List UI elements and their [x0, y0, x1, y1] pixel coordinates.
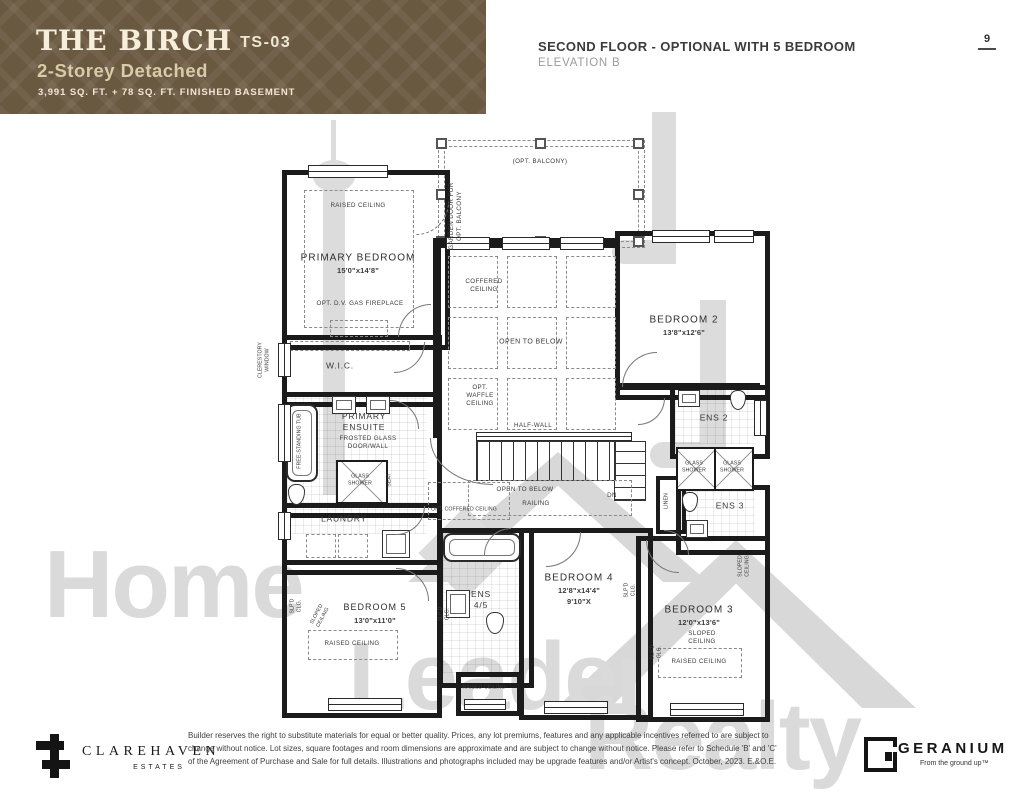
label-line: SLOPED [737, 555, 744, 577]
bedroom3-label: BEDROOM 3 [664, 604, 733, 617]
label-line: SHOWER [348, 480, 372, 487]
washer-outline [306, 534, 336, 558]
wall-segment [433, 238, 441, 438]
railing-label: RAILING [522, 500, 550, 508]
label-line: SLP'D [437, 606, 444, 621]
window [502, 237, 550, 250]
label-line: SLP'D [649, 644, 656, 659]
balcony-label: (OPT. BALCONY) [513, 158, 568, 166]
clarehaven-logo-mark [36, 734, 70, 778]
clerestory-window-label: CLERESTORYWINDOW [257, 342, 271, 378]
plan-title: THE BIRCHTS-03 [36, 24, 291, 57]
disclaimer-line: change without notice. Lot sizes, square… [188, 742, 844, 755]
bedroom2-label: BEDROOM 2 [649, 314, 718, 327]
dryer-outline [338, 534, 368, 558]
geranium-wordmark: GERANIUM [898, 740, 1008, 757]
label-line: SLP'D [623, 582, 630, 597]
half-wall [476, 432, 632, 441]
sloped-ceiling-label: SLOPEDCEILING [737, 555, 751, 577]
floorplan: (OPT. BALCONY) COFFEREDCEILING OPEN TO B… [278, 138, 762, 720]
door-arc [638, 398, 665, 425]
down-label: DN [607, 492, 617, 500]
label-line: RAISED CEILING [463, 685, 506, 692]
sloped-ceiling-label: SLOPEDCEILING [688, 630, 716, 646]
label-line: CEILING [465, 286, 502, 294]
label-line: GLASS [720, 460, 744, 467]
label-line: CLG. [444, 606, 451, 621]
wic-shelf-outline [290, 341, 410, 351]
waffle-ceiling-label: OPT.WAFFLECEILING [466, 384, 494, 408]
label-line: SHOWER [682, 467, 706, 474]
glass-shower-label: GLASSSHOWER [720, 460, 744, 474]
label-line: SLOPED [688, 630, 716, 638]
label-line: CLG. [296, 598, 303, 613]
title-banner: THE BIRCHTS-03 2-Storey Detached 3,991 S… [0, 0, 486, 114]
bedroom4-label: BEDROOM 4 [544, 572, 613, 585]
bedroom5-dims: 13'0"x11'0" [354, 616, 396, 626]
bedroom2-dims: 13'8"x12'6" [663, 328, 705, 338]
window [278, 512, 291, 540]
label-line: WAFFLE [466, 392, 494, 400]
logo-bar [42, 760, 70, 769]
raised-ceiling-label: RAISED CEILING [324, 640, 379, 648]
primary-bedroom-label: PRIMARY BEDROOM [301, 252, 416, 265]
disclaimer-line: Builder reserves the right to substitute… [188, 729, 844, 742]
ensuite45-label: ENS4/5 [471, 589, 491, 611]
half-wall-label: HALF-WALL [514, 422, 552, 430]
plan-area-line: 3,991 SQ. FT. + 78 SQ. FT. FINISHED BASE… [38, 87, 295, 98]
window [278, 343, 291, 377]
disclaimer-line: of the Agreement of Purchase and Sale fo… [188, 755, 844, 768]
label-line: CLERESTORY [257, 342, 264, 378]
room-bedroom-4 [519, 528, 653, 720]
glass-shower-label: GLASSSHOWER [682, 460, 706, 474]
logo-bar [36, 741, 64, 750]
balcony-post [535, 138, 546, 149]
fireplace-label: OPT. D.V. GAS FIREPLACE [316, 300, 403, 308]
window [754, 400, 767, 436]
stairs-symbol [476, 441, 616, 481]
label-line: SLP'D [289, 598, 296, 613]
seat-label: SEAT [387, 473, 394, 487]
window [278, 404, 291, 462]
window [560, 237, 604, 250]
elevation-heading: ELEVATION B [538, 57, 621, 69]
primary-bedroom-dims: 15'0"x14'8" [337, 266, 379, 276]
window [544, 701, 608, 714]
garden-door-label: GARDEN DOOR FOROPT. BALCONY [448, 182, 464, 250]
disclaimer: Builder reserves the right to substitute… [188, 729, 844, 768]
label-line: ENSUITE [342, 422, 386, 433]
label-line: SHOWER [720, 467, 744, 474]
label-line: OPT. BALCONY [456, 182, 464, 250]
window [670, 703, 744, 716]
label-line: CLG. [656, 644, 663, 659]
label-line: CLG. [630, 582, 637, 597]
fireplace-outline [330, 320, 388, 337]
bedroom4-dims-alt: 9'10"X [567, 597, 591, 607]
primary-ensuite-label: PRIMARYENSUITE [342, 411, 386, 433]
label-line: ENS [471, 589, 491, 600]
label-line: CEILING [688, 638, 716, 646]
bedroom4-dims: 12'8"x14'4" [558, 586, 600, 596]
opt-coffered-label: OPT. COFFERED CEILING [431, 507, 497, 514]
raised-ceiling-label: RAISED CEILING [330, 202, 385, 210]
model-code: TS-03 [240, 34, 291, 51]
bedroom3-dims: 12'0"x13'6" [678, 618, 720, 628]
floor-heading: SECOND FLOOR - OPTIONAL WITH 5 BEDROOM [538, 39, 856, 54]
label-line: GLASS [348, 473, 372, 480]
sink-symbol [686, 520, 708, 538]
glass-shower-label: GLASSSHOWER [348, 473, 372, 487]
window [714, 230, 754, 243]
watermark-word: Home [44, 530, 303, 640]
balcony-post [633, 189, 644, 200]
coffered-ceiling-label: COFFEREDCEILING [465, 278, 502, 294]
label-line: PRIMARY [342, 411, 386, 422]
plan-title-text: THE BIRCH [36, 24, 232, 57]
frosted-glass-label: FROSTED GLASSDOOR/WALL [339, 435, 396, 451]
label-line: GLASS [682, 460, 706, 467]
geranium-logo-mark [864, 737, 897, 772]
plan-subtitle: 2-Storey Detached [37, 60, 208, 82]
laundry-label: LAUNDRY [321, 513, 367, 524]
geranium-tagline: From the ground up™ [920, 760, 988, 767]
raised-ceiling-label: RAISED CEILING [463, 685, 506, 692]
label-line: COFFERED [465, 278, 502, 286]
label-line: 4/5 [471, 600, 491, 611]
label-line: OPT. [466, 384, 494, 392]
balcony-post [633, 138, 644, 149]
label-line: CEILING [466, 400, 494, 408]
slpd-clg-label: SLP'DCLG. [649, 644, 663, 659]
label-line: GARDEN DOOR FOR [448, 182, 456, 250]
free-standing-tub-label: FREE-STANDING TUB [297, 413, 304, 468]
logo-block [885, 752, 892, 761]
wic-label: W.I.C. [326, 360, 354, 371]
linen-label: LINEN [664, 493, 671, 509]
label-line: FROSTED GLASS [339, 435, 396, 443]
label-line: WINDOW [264, 342, 271, 378]
window [464, 699, 506, 710]
page-number: 9 [978, 33, 996, 50]
label-line: DOOR/WALL [339, 443, 396, 451]
window [308, 165, 388, 178]
raised-ceiling-label: RAISED CEILING [671, 658, 726, 666]
slpd-clg-label: SLP'DCLG. [289, 598, 303, 613]
ensuite3-label: ENS 3 [716, 500, 745, 511]
slpd-clg-label: SLP'DCLG. [623, 582, 637, 597]
bedroom5-label: BEDROOM 5 [343, 602, 406, 614]
open-to-below-stairs-label: OPEN TO BELOW [497, 486, 554, 494]
slpd-clg-label: SLP'DCLG. [437, 606, 451, 621]
window [652, 230, 710, 243]
balcony-post [436, 138, 447, 149]
balcony-outline [438, 140, 645, 248]
ensuite2-label: ENS 2 [700, 412, 729, 423]
open-to-below-label: OPEN TO BELOW [499, 337, 563, 346]
label-line: CEILING [744, 555, 751, 577]
sink-symbol [678, 390, 700, 407]
window [328, 698, 402, 711]
